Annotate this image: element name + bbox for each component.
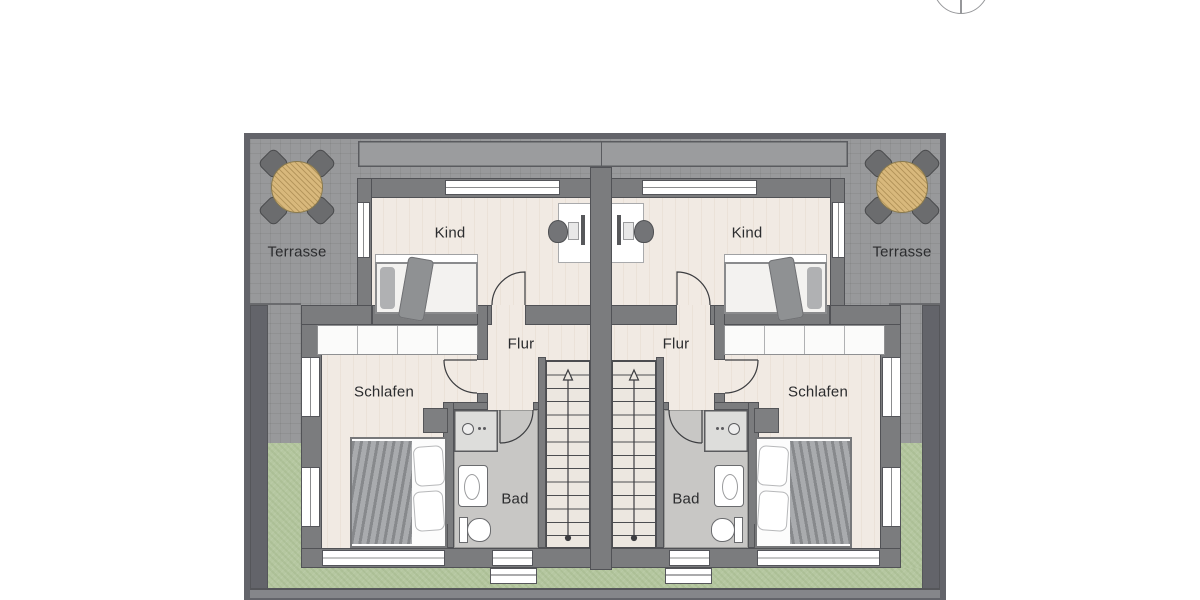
desk-chair-icon: [548, 220, 568, 243]
stairs-icon: [546, 360, 590, 548]
room-label-kind-right: Kind: [732, 225, 763, 242]
room-label-bad-left: Bad: [501, 491, 528, 508]
toilet-icon: [459, 517, 491, 543]
sink-icon: [458, 465, 488, 507]
window-kind-north: [445, 180, 560, 195]
window-schlafen-west-1: [882, 357, 901, 417]
window-kind-north: [642, 180, 757, 195]
pillow-icon: [380, 267, 395, 309]
exterior-sill: [665, 568, 712, 584]
blanket-icon: [768, 256, 804, 322]
desk-chair-icon: [634, 220, 654, 243]
wall-schlafen-north: [830, 305, 901, 325]
room-label-flur-left: Flur: [508, 336, 535, 353]
nightstand-icon: [423, 408, 448, 433]
stairs-icon: [612, 360, 656, 548]
room-label-schlafen-right: Schlafen: [788, 384, 848, 401]
window-schlafen-west-2: [882, 467, 901, 527]
child-bed-icon: [375, 262, 478, 314]
wall-schlafen-north: [301, 305, 372, 325]
wall-flur-west: [477, 305, 488, 360]
shower-head-icon: [728, 423, 740, 435]
wall-kind-south-stub: [601, 305, 677, 325]
window-schlafen-south: [757, 550, 880, 566]
double-bed-icon: [350, 437, 447, 548]
blanket-icon: [352, 441, 412, 544]
nightstand-icon: [754, 408, 779, 433]
toilet-icon: [711, 517, 743, 543]
window-kind-west: [357, 202, 370, 258]
wall-stair-west: [538, 357, 546, 548]
blanket-icon: [398, 256, 434, 322]
pillow-icon: [413, 445, 446, 487]
exterior-sill: [490, 568, 537, 584]
window-schlafen-south: [322, 550, 445, 566]
shower-icon: [454, 410, 498, 452]
wardrobe-icon: [724, 325, 885, 355]
room-label-terrasse-left: Terrasse: [267, 244, 326, 261]
blanket-icon: [790, 441, 850, 544]
monitor-icon: [581, 215, 585, 245]
shower-head-icon: [462, 423, 474, 435]
pillow-icon: [413, 490, 446, 532]
room-label-flur-right: Flur: [663, 336, 690, 353]
sink-icon: [714, 465, 744, 507]
window-schlafen-west-1: [301, 357, 320, 417]
window-bad-south: [669, 550, 710, 566]
shower-icon: [704, 410, 748, 452]
keyboard-icon: [623, 222, 634, 240]
monitor-icon: [617, 215, 621, 245]
double-bed-icon: [755, 437, 852, 548]
wall-stair-west: [656, 357, 664, 548]
north-needle-icon: [960, 0, 962, 14]
pillow-icon: [757, 445, 790, 487]
pillow-icon: [757, 490, 790, 532]
room-label-schlafen-left: Schlafen: [354, 384, 414, 401]
keyboard-icon: [568, 222, 579, 240]
party-wall: [590, 167, 612, 570]
window-kind-west: [832, 202, 845, 258]
child-bed-icon: [724, 262, 827, 314]
floorplan-canvas: Terrasse Terrasse Kind Kind Flur Flur Sc…: [0, 0, 1200, 600]
pillow-icon: [807, 267, 822, 309]
window-schlafen-west-2: [301, 467, 320, 527]
wardrobe-icon: [317, 325, 478, 355]
room-label-kind-left: Kind: [435, 225, 466, 242]
site-plot: [244, 133, 946, 600]
window-bad-south: [492, 550, 533, 566]
room-label-terrasse-right: Terrasse: [872, 244, 931, 261]
room-label-bad-right: Bad: [672, 491, 699, 508]
